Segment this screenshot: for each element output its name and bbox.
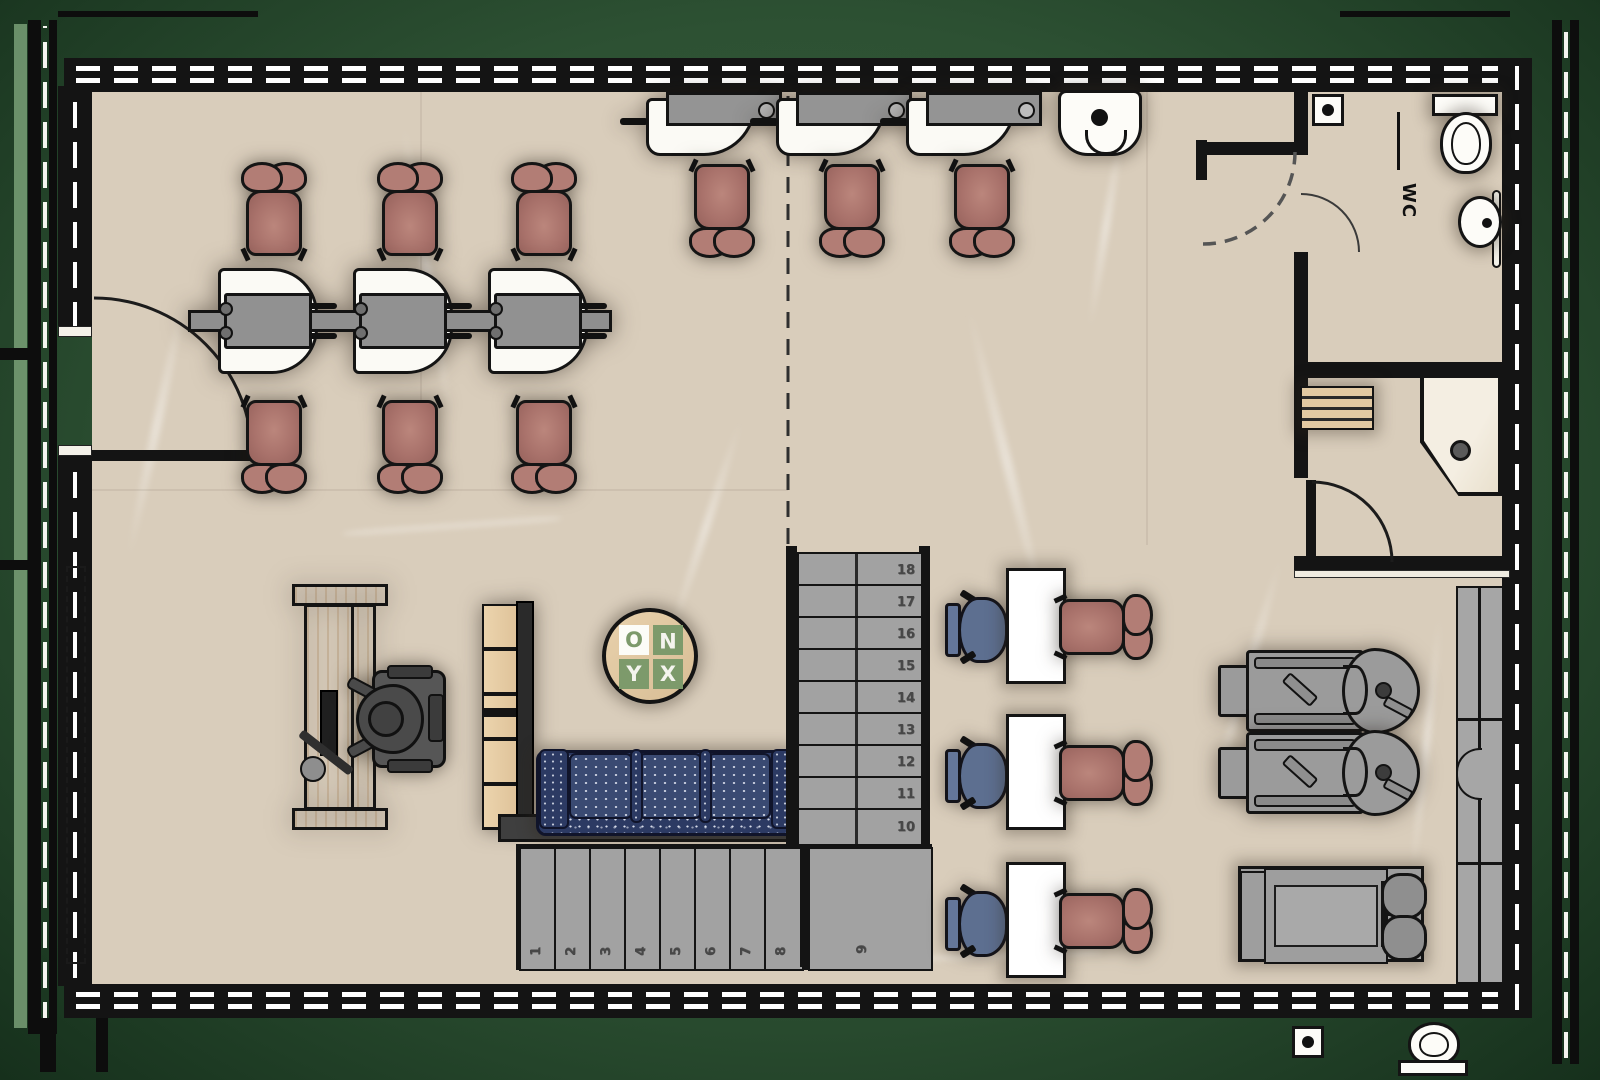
receptionist-figure [352,668,442,764]
logo-letter-x: X [653,659,683,689]
retail-shelf [482,604,534,830]
sofa-armrest [539,749,569,829]
station-handle [620,118,648,125]
stair-tread: 3 [589,847,629,971]
equipment-trolley [359,293,447,349]
operator-chair [944,594,1006,660]
wall-styling-station [926,92,1042,162]
operator-chair [944,740,1006,806]
styling-chair [242,398,306,488]
client-chair [1057,889,1147,953]
bed-mattress [1274,885,1378,947]
shampoo-backwash-unit [1216,648,1414,728]
logo-letter-n: N [653,625,683,655]
station-handle [880,118,908,125]
stair-landing: 9 [808,847,933,971]
styling-chair [378,398,442,488]
waiting-sofa [536,750,796,836]
styling-chair [242,168,306,258]
station-handle [750,118,778,125]
styling-chair [378,168,442,258]
sofa-cushion [569,753,633,819]
stair-tread: 5 [659,847,699,971]
equipment-trolley [494,293,582,349]
desk-lamp-base [300,756,326,782]
floor-plan: WC [0,0,1600,1080]
wall-styling-station [796,92,912,162]
double-styling-station [188,268,612,374]
corridor-door-swing-dashed-arc [1203,152,1295,244]
bed-chair-cushion [1381,873,1427,919]
bed-chair-cushion [1381,915,1427,961]
wall-counter [1456,586,1504,984]
stair-tread: 2 [554,847,594,971]
styling-chair [512,168,576,258]
logo-letter-o: O [619,625,649,655]
wc-door-swing-arc [1301,194,1359,252]
treatment-bed [1238,866,1424,962]
desk-bottom-cap [292,808,388,830]
shampoo-backwash-unit [1216,730,1414,810]
sofa-divider [699,749,712,823]
styling-chair [950,162,1014,252]
stair-tread: 1 [519,847,559,971]
styling-chair [690,162,754,252]
sofa-cushion [707,753,771,819]
stair-tread: 6 [694,847,734,971]
sofa-divider [630,749,643,823]
client-chair [1057,741,1147,805]
counter-sink [1456,748,1482,800]
stair-divider [800,847,808,967]
client-chair [1057,595,1147,659]
wall-wash-basin [1058,90,1142,156]
lower-staircase: 1 2 3 4 5 6 7 8 9 [516,844,932,970]
stair-tread: 8 [764,847,804,971]
desk-top-cap [292,584,388,606]
operator-chair [944,888,1006,954]
stair-tread: 4 [624,847,664,971]
shower-door-swing-arc [1312,482,1392,562]
wall-styling-station [666,92,782,162]
sofa-cushion [638,753,702,819]
stair-tread: 7 [729,847,769,971]
logo-letter-y: Y [619,659,649,689]
equipment-trolley [224,293,312,349]
styling-chair [820,162,884,252]
styling-chair [512,398,576,488]
upper-staircase: 18 17 16 15 14 13 12 11 10 [786,552,930,846]
onyx-logo-medallion: O N Y X [602,608,698,704]
